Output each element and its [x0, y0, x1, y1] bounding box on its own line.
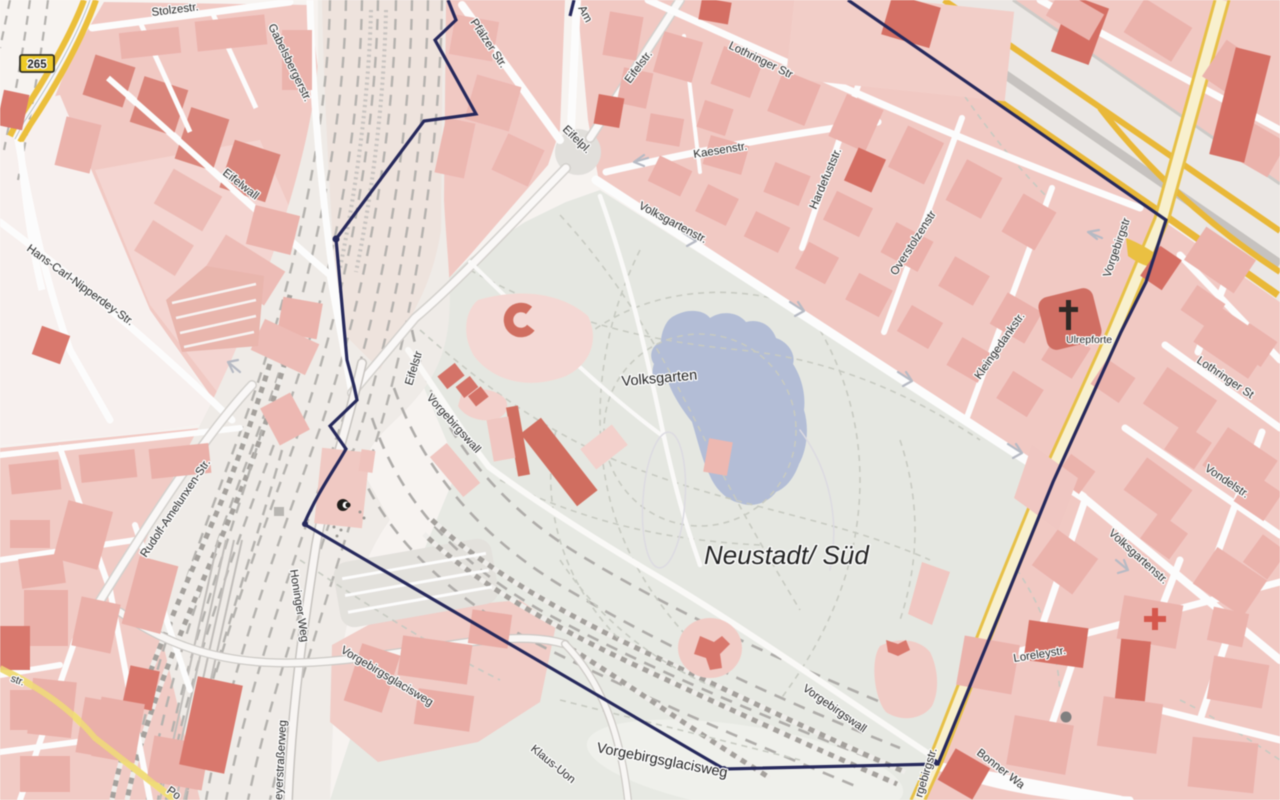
svg-text:Neustadt/ Süd: Neustadt/ Süd	[704, 540, 870, 570]
svg-text:265: 265	[27, 59, 47, 71]
svg-text:Ulrepforte: Ulrepforte	[1066, 334, 1112, 346]
